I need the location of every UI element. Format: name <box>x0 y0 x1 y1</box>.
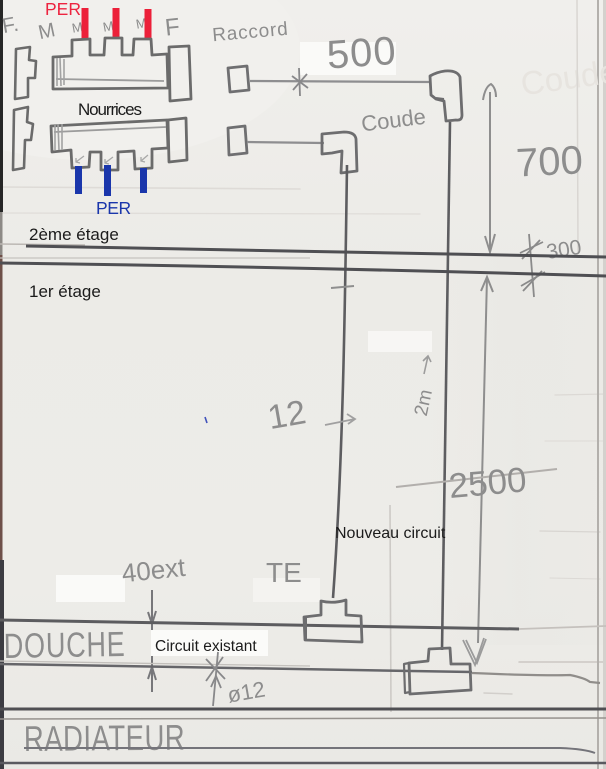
svg-text:1er étage: 1er étage <box>29 282 101 301</box>
svg-text:700: 700 <box>515 138 584 185</box>
svg-text:PER: PER <box>45 0 81 19</box>
svg-text:DOUCHE: DOUCHE <box>3 624 125 665</box>
svg-text:2ème étage: 2ème étage <box>29 225 119 244</box>
svg-text:F: F <box>164 13 181 41</box>
svg-text:TE: TE <box>266 557 302 588</box>
svg-text:Circuit existant: Circuit existant <box>155 638 257 655</box>
svg-text:Nourrices: Nourrices <box>78 100 141 119</box>
svg-text:2500: 2500 <box>447 460 528 506</box>
svg-text:12: 12 <box>265 393 309 437</box>
svg-text:500: 500 <box>325 29 398 78</box>
svg-text:PER: PER <box>96 198 131 218</box>
svg-text:Nouveau circuit: Nouveau circuit <box>335 525 446 542</box>
svg-text:RADIATEUR: RADIATEUR <box>24 717 186 759</box>
